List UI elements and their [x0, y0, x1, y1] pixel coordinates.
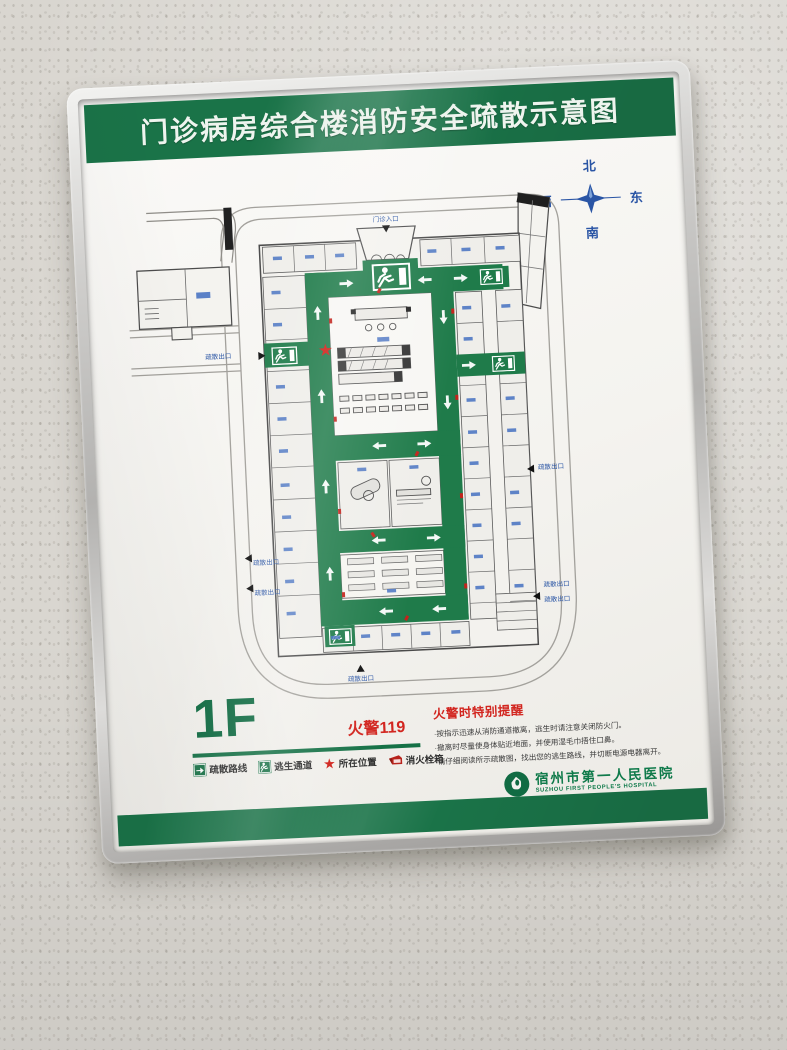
floor-label: 1F: [191, 686, 259, 751]
fire-phone-label: 火警119: [347, 713, 406, 740]
current-location-star: ★: [317, 340, 333, 360]
exit-label-right1: 疏散出口: [538, 461, 564, 471]
fire-alarm-reminder: 火警时特别提醒 ·按指示迅速从消防通道撤离，逃生时请注意关闭防火门。 ·撤离时尽…: [432, 691, 691, 769]
exit-label-left1: 疏散出口: [205, 351, 231, 361]
location-star-icon: ★: [323, 757, 336, 771]
exit-label-right2: 疏散出口: [543, 579, 569, 589]
wall-photo: 门诊病房综合楼消防安全疏散示意图 北 南 西 东: [0, 0, 787, 1050]
poster-footer-band: [117, 788, 708, 847]
escape-passage-icon: [258, 760, 272, 774]
poster-header-band: 门诊病房综合楼消防安全疏散示意图: [84, 78, 676, 164]
exit-label-top: 门诊入口: [372, 214, 398, 224]
evacuation-poster-frame: 门诊病房综合楼消防安全疏散示意图 北 南 西 东: [66, 60, 726, 865]
fire-hydrant-icon: [387, 754, 403, 767]
legend-label: 疏散路线: [209, 760, 248, 776]
exit-label-left2: 疏散出口: [253, 557, 279, 567]
exit-label-left3: 疏散出口: [254, 587, 280, 597]
legend-item-location: ★ 所在位置: [323, 754, 377, 771]
compass-north-label: 北: [582, 155, 596, 175]
exit-label-bottom: 疏散出口: [348, 673, 374, 683]
hospital-logo-icon: [504, 771, 530, 797]
waiting-seats: [347, 554, 443, 591]
legend-item-passage: 逃生通道: [258, 757, 313, 774]
poster-title: 门诊病房综合楼消防安全疏散示意图: [139, 89, 620, 152]
exit-label-right3: 疏散出口: [544, 594, 570, 604]
escalators: [337, 345, 411, 385]
poster-face: 门诊病房综合楼消防安全疏散示意图 北 南 西 东: [78, 71, 715, 853]
legend-label: 逃生通道: [274, 757, 313, 773]
legend-item-route: 疏散路线: [193, 760, 248, 777]
annex-building: [134, 207, 241, 341]
compass-east-label: 东: [629, 187, 643, 207]
floor-plan: ★ 门诊入口 疏散出口 疏散出口 疏散出口 疏散出口 疏散出口 疏散出口: [123, 187, 628, 711]
legend-label: 所在位置: [338, 754, 377, 770]
evacuation-route-icon: [193, 763, 207, 777]
